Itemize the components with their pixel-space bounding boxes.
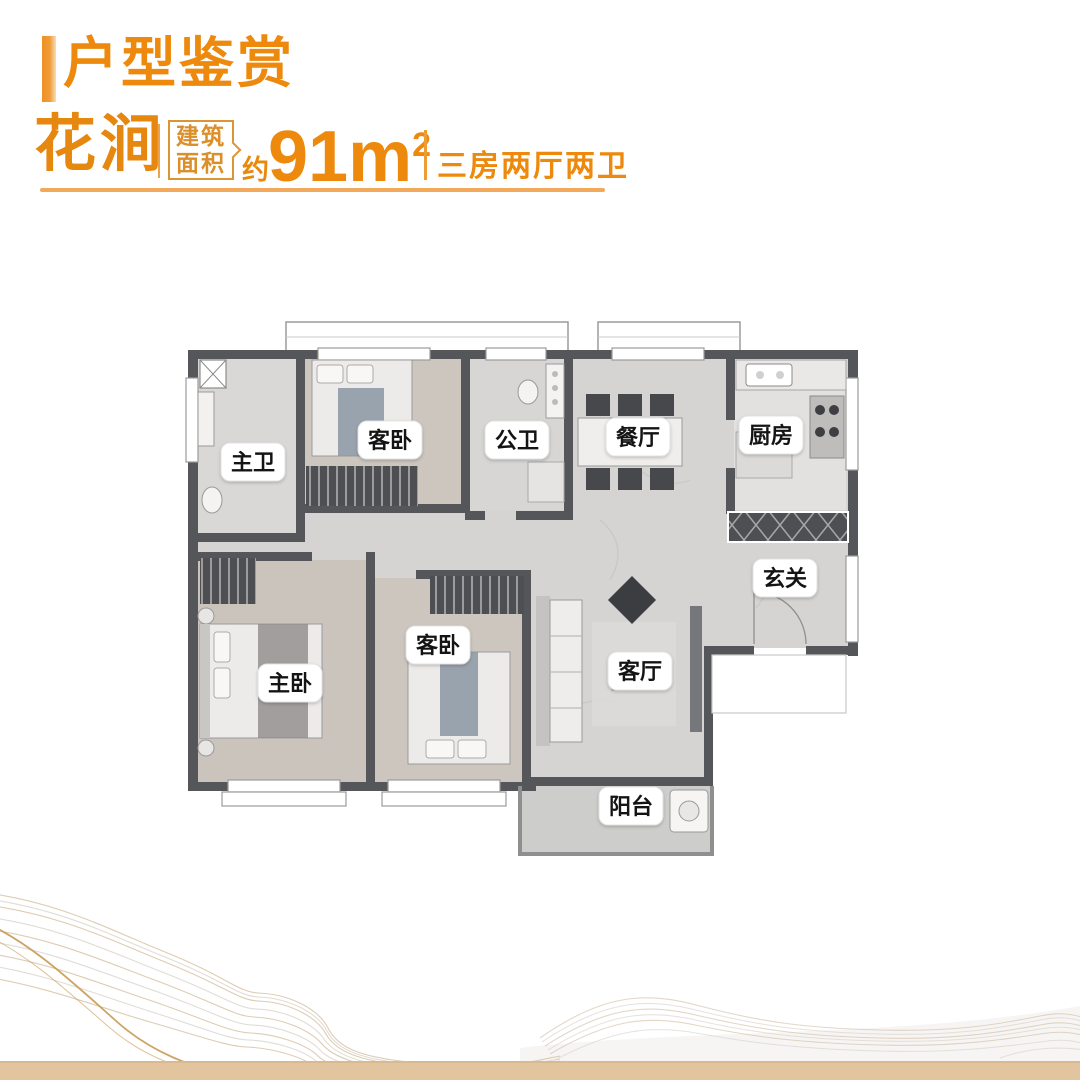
svg-text:阳台: 阳台 xyxy=(609,794,653,819)
area-superscript: 2 xyxy=(412,126,431,164)
room-label-master-bath: 主卫 xyxy=(221,443,285,481)
floor-plan: 主卫 客卧 公卫 餐厅 厨房 玄关 主卧 客卧 xyxy=(178,308,908,868)
divider-line-2 xyxy=(424,130,427,180)
svg-text:客卧: 客卧 xyxy=(416,633,460,658)
room-label-balcony: 阳台 xyxy=(599,787,663,825)
room-label-foyer: 玄关 xyxy=(753,559,817,597)
svg-text:客卧: 客卧 xyxy=(368,428,412,453)
strip-edge xyxy=(0,1061,1080,1063)
mountain-waves-decoration xyxy=(0,880,1080,1080)
layout-description: 三房两厅两卫 xyxy=(437,141,629,185)
svg-text:厨房: 厨房 xyxy=(749,423,793,448)
svg-text:餐厅: 餐厅 xyxy=(616,425,660,450)
room-label-public-bath: 公卫 xyxy=(485,421,549,459)
wardrobe-lower xyxy=(430,576,524,614)
room-label-kitchen: 厨房 xyxy=(739,416,803,454)
wardrobe-master xyxy=(200,558,256,604)
poster-page: { "header": { "section_title": "户型鉴赏", "… xyxy=(0,0,1080,1080)
building-area-box: 建筑 面积 xyxy=(168,120,234,180)
svg-text:主卫: 主卫 xyxy=(231,450,275,475)
area-box-notch xyxy=(225,142,242,159)
svg-text:公卫: 公卫 xyxy=(495,428,539,453)
svg-text:主卧: 主卧 xyxy=(268,671,312,696)
area-unit: m xyxy=(348,117,412,197)
page-title: 户型鉴赏 xyxy=(63,28,295,98)
room-label-guest-bedroom-upper: 客卧 xyxy=(358,421,422,459)
wardrobe-upper xyxy=(306,466,418,506)
shaft-box xyxy=(200,360,226,388)
svg-text:玄关: 玄关 xyxy=(763,566,807,591)
area-box-line2: 面积 xyxy=(176,150,226,177)
room-label-living-room: 客厅 xyxy=(608,652,672,690)
title-accent-bar xyxy=(42,36,56,102)
room-label-master-bedroom: 主卧 xyxy=(258,664,322,702)
shoe-cabinet xyxy=(728,512,848,542)
approx-label: 约 xyxy=(242,148,269,187)
unit-name: 花涧 xyxy=(34,106,166,184)
room-label-guest-bedroom-lower: 客卧 xyxy=(406,626,470,664)
area-box-line1: 建筑 xyxy=(176,123,226,150)
bottom-strip xyxy=(0,1063,1080,1080)
room-label-dining-room: 餐厅 xyxy=(606,418,670,456)
gold-underline xyxy=(40,188,605,192)
svg-text:客厅: 客厅 xyxy=(618,659,662,684)
area-value: 91m2 xyxy=(268,108,431,194)
divider-line-1 xyxy=(158,124,160,178)
area-number: 91 xyxy=(268,117,348,197)
